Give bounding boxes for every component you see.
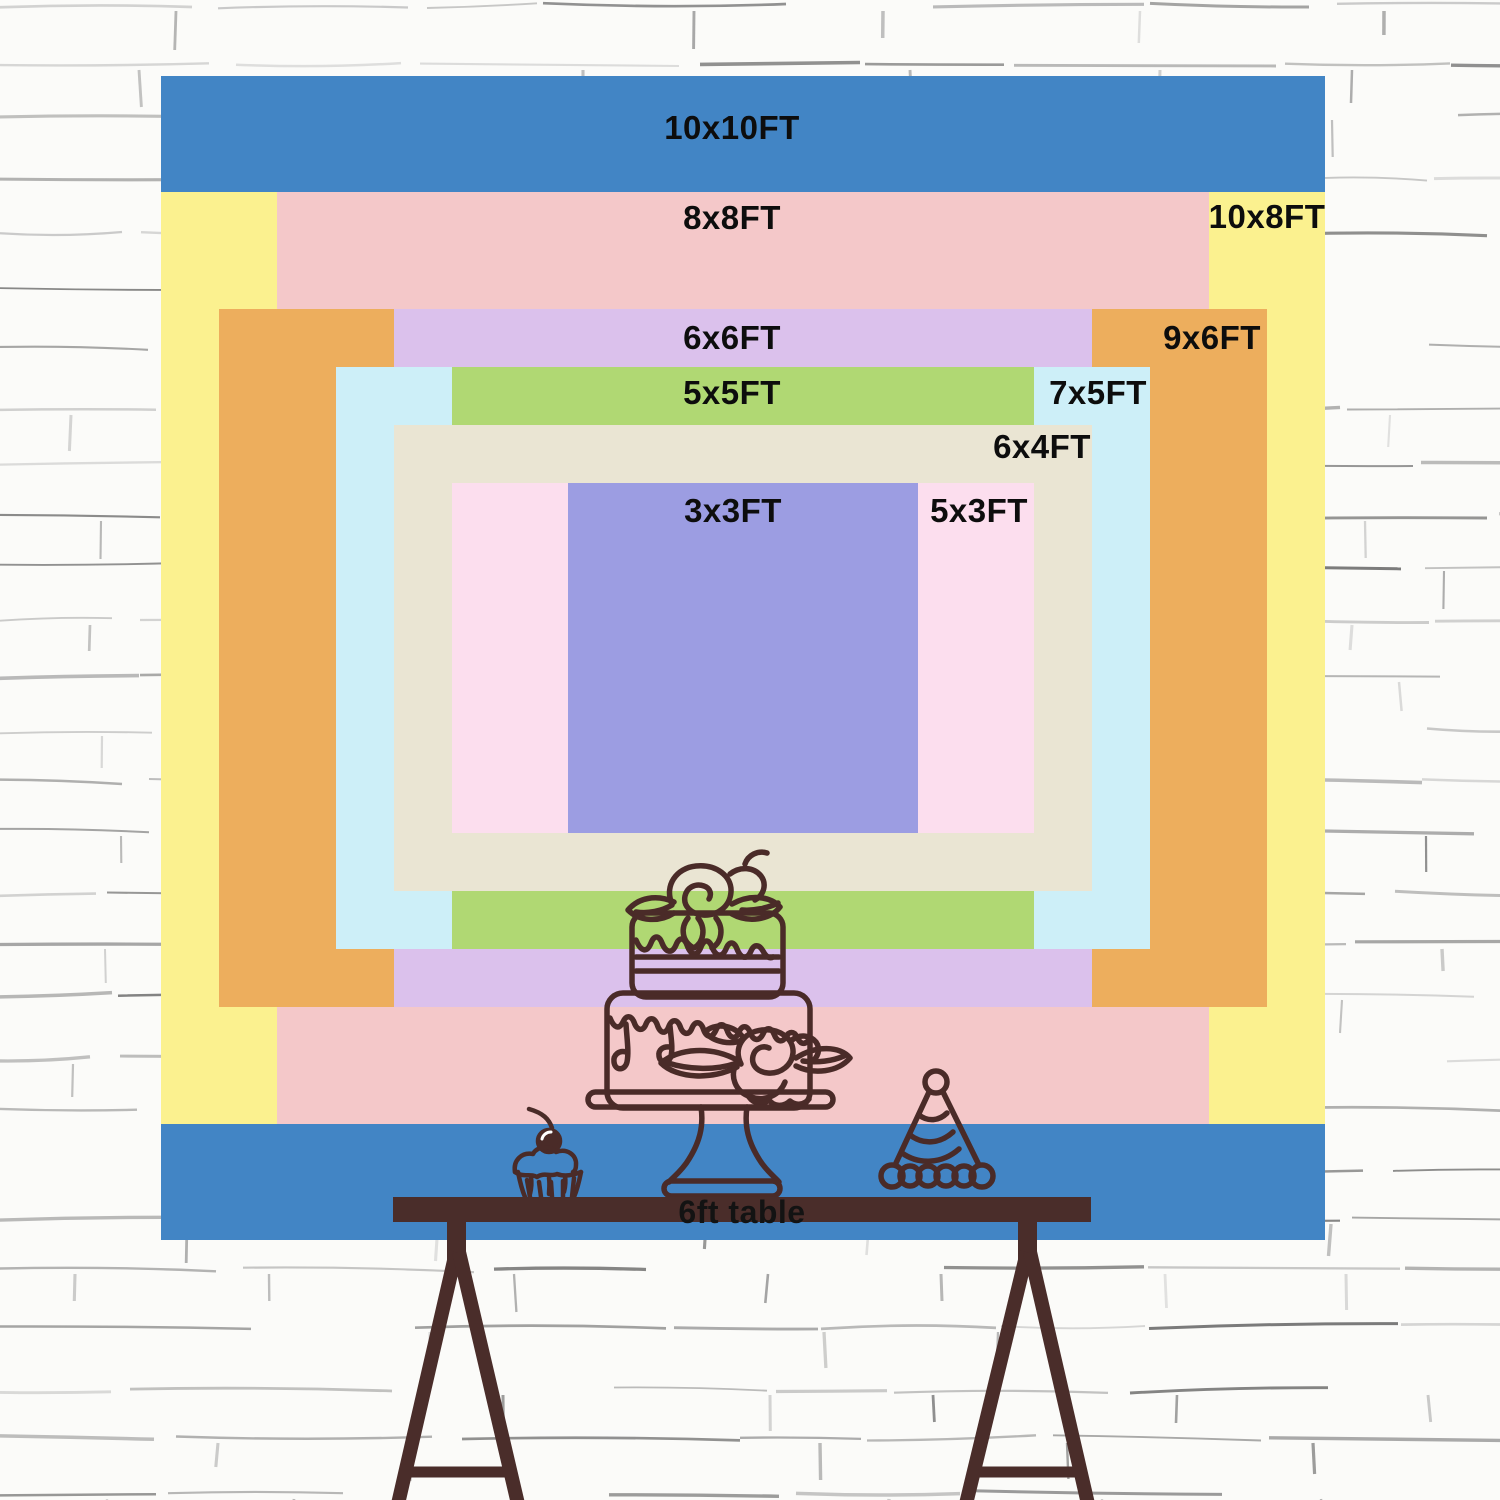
backdrop-size-chart: 10x10FT10x8FT8x8FT9x6FT6x6FT7x5FT5x5FT6x…: [0, 0, 1500, 1500]
size-label-5x3ft: 5x3FT: [930, 492, 1028, 530]
size-label-9x6ft: 9x6FT: [1163, 319, 1261, 357]
table-label: 6ft table: [678, 1196, 805, 1228]
size-label-8x8ft: 8x8FT: [683, 199, 781, 237]
size-label-10x10ft: 10x10FT: [664, 109, 800, 147]
size-label-5x5ft: 5x5FT: [683, 374, 781, 412]
size-rect-3x3ft: [568, 483, 917, 832]
size-label-6x4ft: 6x4FT: [993, 428, 1091, 466]
size-label-10x8ft: 10x8FT: [1209, 198, 1326, 236]
table-top: 6ft table: [393, 1197, 1091, 1222]
scene: 10x10FT10x8FT8x8FT9x6FT6x6FT7x5FT5x5FT6x…: [0, 0, 1500, 1500]
size-label-7x5ft: 7x5FT: [1049, 374, 1147, 412]
size-label-3x3ft: 3x3FT: [684, 492, 782, 530]
size-label-6x6ft: 6x6FT: [683, 319, 781, 357]
